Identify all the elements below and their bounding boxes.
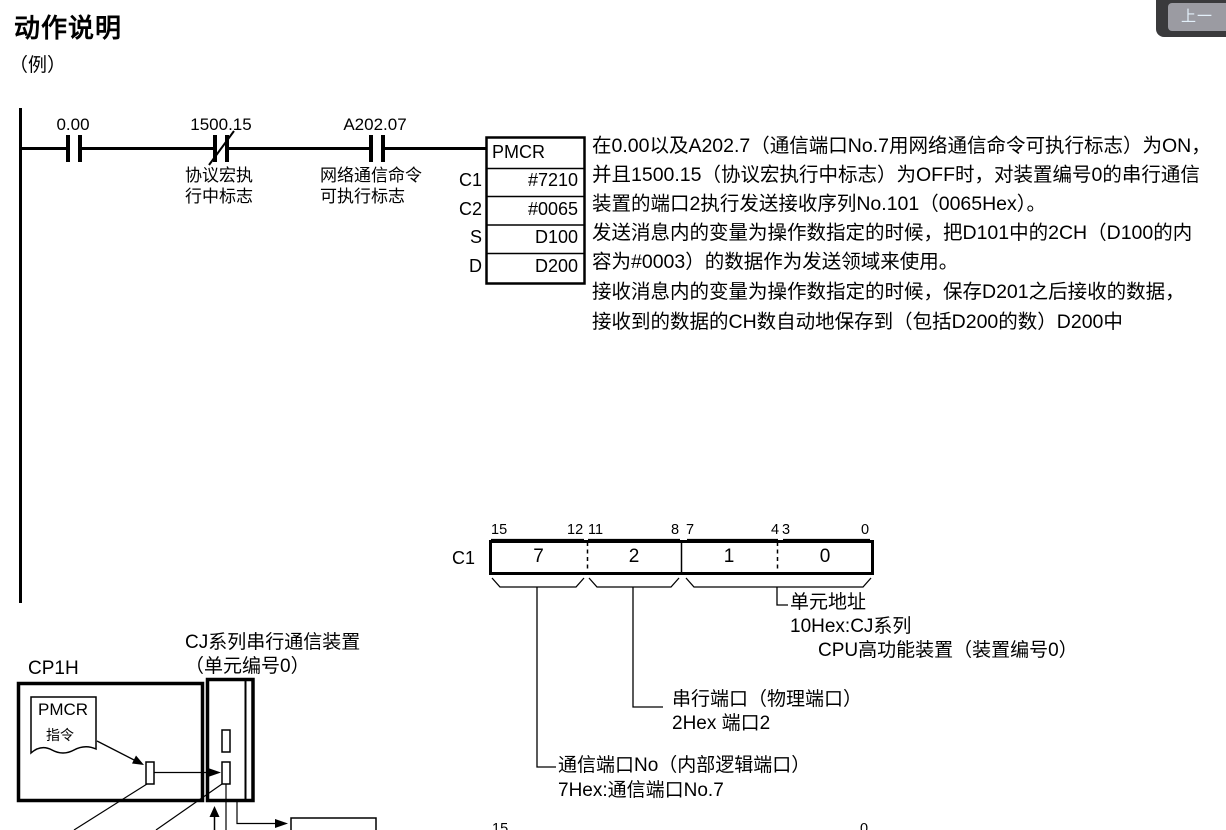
description-line: 容为#0003）的数据作为发送领域来使用。 — [592, 245, 958, 274]
operand-value-d: D200 — [494, 256, 578, 277]
contact2-address: 1500.15 — [186, 115, 256, 135]
instruction-name: PMCR — [492, 142, 545, 163]
c2-bit-number-15: 15 — [492, 821, 508, 830]
doc-to-port-arrow — [97, 741, 138, 762]
contact3-label-line1: 网络通信命令 — [320, 165, 422, 186]
callout-serial-port-line2: 2Hex 端口2 — [672, 712, 862, 736]
bit-number-0: 0 — [861, 522, 869, 538]
contact2-label: 协议宏执 行中标志 — [185, 165, 253, 207]
operand-value-s: D100 — [494, 227, 578, 248]
c1-nibble-value: 2 — [587, 546, 681, 568]
memory-box-partial — [291, 818, 376, 830]
description-line: 发送消息内的变量为操作数指定的时候，把D101中的2CH（D100的内 — [592, 216, 1192, 245]
brace-bits-15-12 — [492, 578, 584, 587]
contact3-address: A202.07 — [340, 115, 410, 135]
brace-bits-11-8 — [589, 578, 679, 587]
description-line: 并且1500.15（协议宏执行中标志）为OFF时，对装置编号0的串行通信 — [592, 158, 1200, 187]
bit-number-12: 12 — [567, 522, 583, 538]
contact2-label-line2: 行中标志 — [185, 186, 253, 207]
cpu-port — [146, 762, 154, 784]
page-title: 动作说明 — [14, 8, 122, 45]
callout-serial-port: 串行端口（物理端口） 2Hex 端口2 — [672, 688, 862, 736]
c1-nibble-value: 0 — [777, 546, 873, 568]
connector-comm-port — [537, 587, 556, 767]
c1-nibble-value: 7 — [490, 546, 587, 568]
description-line: 接收到的数据的CH数自动地保存到（包括D200的数）D200中 — [592, 305, 1123, 334]
connector-serial-port — [633, 587, 663, 707]
contact3-label: 网络通信命令 可执行标志 — [320, 165, 422, 207]
contact3-label-line2: 可执行标志 — [320, 186, 422, 207]
unit-port-lower — [222, 762, 230, 784]
callout-comm-port: 通信端口No（内部逻辑端口） 7Hex:通信端口No.7 — [558, 753, 810, 803]
operand-name-d: D — [440, 256, 482, 277]
operand-name-c2: C2 — [440, 199, 482, 220]
manual-page: { "header": { "title": "动作说明", "example_… — [0, 0, 1226, 830]
pmcr-doc-sublabel: 指令 — [46, 725, 74, 745]
brace-bits-7-0 — [686, 578, 871, 587]
bit-number-8: 8 — [671, 522, 679, 538]
callout-serial-port-line1: 串行端口（物理端口） — [672, 688, 862, 712]
operand-name-c1: C1 — [440, 170, 482, 191]
callout-comm-port-line1: 通信端口No（内部逻辑端口） — [558, 753, 810, 778]
bit-number-4: 4 — [771, 522, 779, 538]
cj-unit-label-line1: CJ系列串行通信装置 — [185, 627, 360, 654]
bit-number-15: 15 — [491, 522, 507, 538]
leader-line-right — [156, 784, 222, 830]
connector-unit-addr — [777, 587, 788, 605]
cp1h-label: CP1H — [28, 658, 79, 680]
diagram-linework — [0, 0, 1226, 830]
contact2-label-line1: 协议宏执 — [185, 165, 253, 186]
callout-unit-address-line1: 单元地址 — [790, 591, 1078, 615]
c1-nibble-value: 1 — [681, 546, 777, 568]
callout-comm-port-line2: 7Hex:通信端口No.7 — [558, 778, 810, 803]
contact-no-0.00 — [68, 135, 80, 162]
prev-page-button[interactable]: 上一 — [1168, 3, 1226, 31]
down-right-connector — [237, 801, 276, 824]
operand-value-c1: #7210 — [494, 170, 578, 191]
callout-unit-address-line3: CPU高功能装置（装置编号0） — [790, 639, 1078, 663]
bit-number-7: 7 — [686, 522, 694, 538]
leader-line-left — [74, 784, 147, 830]
operand-name-s: S — [440, 227, 482, 248]
pmcr-doc-label: PMCR — [38, 700, 88, 720]
contact-no-A202.07 — [371, 135, 383, 162]
unit-port-upper — [222, 730, 230, 752]
example-label: （例） — [9, 50, 66, 77]
c1-register-label: C1 — [452, 548, 475, 569]
bit-number-11: 11 — [588, 522, 603, 538]
contact1-address: 0.00 — [48, 115, 98, 135]
callout-unit-address: 单元地址 10Hex:CJ系列 CPU高功能装置（装置编号0） — [790, 591, 1078, 663]
description-line: 在0.00以及A202.7（通信端口No.7用网络通信命令可执行标志）为ON， — [592, 129, 1211, 158]
c2-bit-number-0: 0 — [860, 821, 868, 830]
description-line: 装置的端口2执行发送接收序列No.101（0065Hex）。 — [592, 187, 1046, 216]
callout-unit-address-line2: 10Hex:CJ系列 — [790, 615, 1078, 639]
description-line: 接收消息内的变量为操作数指定的时候，保存D201之后接收的数据， — [592, 275, 1185, 304]
cj-unit-label-line2: （单元编号0） — [185, 651, 310, 678]
up-arrow-head — [210, 806, 220, 817]
bit-number-3: 3 — [782, 522, 790, 538]
operand-value-c2: #0065 — [494, 199, 578, 220]
